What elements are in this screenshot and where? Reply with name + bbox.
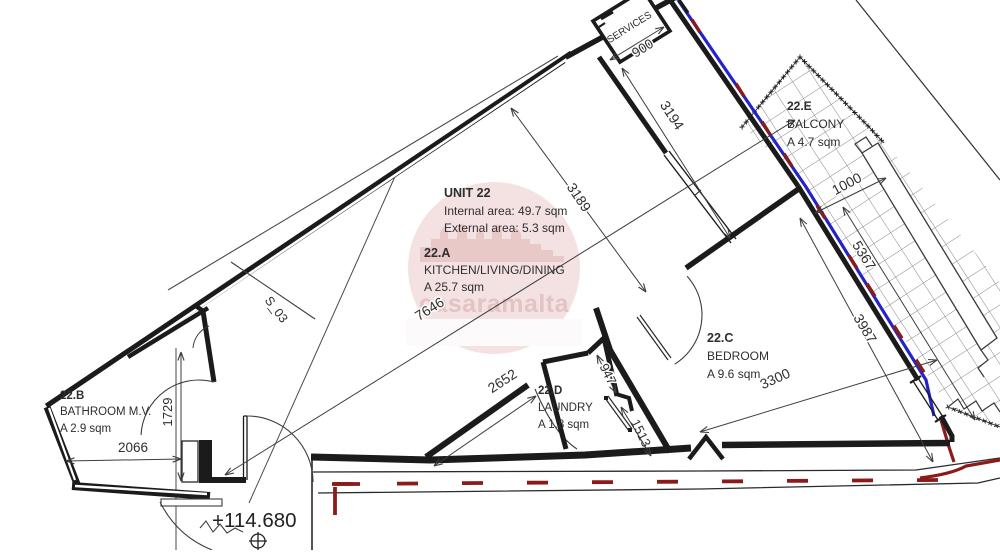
svg-text:22.B: 22.B — [60, 390, 84, 402]
svg-text:22.E: 22.E — [787, 99, 812, 113]
svg-text:BEDROOM: BEDROOM — [707, 349, 769, 363]
svg-text:A 1.8 sqm: A 1.8 sqm — [538, 419, 589, 431]
svg-text:KITCHEN/LIVING/DINING: KITCHEN/LIVING/DINING — [424, 263, 565, 277]
svg-text:+114.680: +114.680 — [212, 509, 297, 532]
svg-text:22.C: 22.C — [707, 331, 733, 345]
svg-text:2066: 2066 — [118, 440, 148, 455]
svg-text:BALCONY: BALCONY — [787, 117, 844, 131]
svg-text:Internal area: 49.7 sqm: Internal area: 49.7 sqm — [444, 204, 567, 218]
svg-text:22.A: 22.A — [424, 246, 450, 260]
svg-text:22.D: 22.D — [538, 385, 562, 397]
svg-text:1729: 1729 — [160, 398, 175, 427]
svg-text:LAUNDRY: LAUNDRY — [538, 402, 593, 414]
svg-text:A 4.7 sqm: A 4.7 sqm — [787, 135, 840, 149]
svg-text:A 2.9 sqm: A 2.9 sqm — [60, 423, 111, 435]
svg-text:External area: 5.3 sqm: External area: 5.3 sqm — [444, 221, 565, 235]
svg-text:BATHROOM M.V.: BATHROOM M.V. — [60, 406, 151, 418]
svg-text:A 9.6 sqm: A 9.6 sqm — [707, 367, 760, 381]
svg-text:A 25.7 sqm: A 25.7 sqm — [424, 280, 484, 294]
svg-text:UNIT 22: UNIT 22 — [444, 186, 491, 200]
